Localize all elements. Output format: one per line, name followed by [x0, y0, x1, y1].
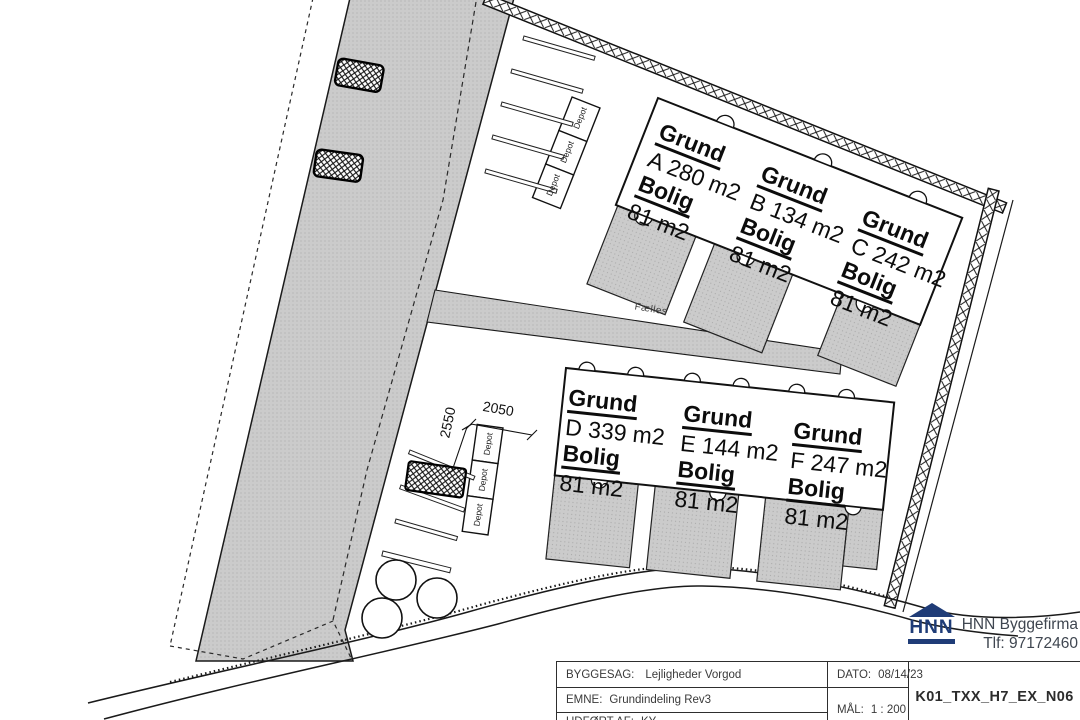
plot-e-bolig-label: Bolig — [676, 456, 737, 491]
emne-label: EMNE: — [566, 694, 602, 706]
vehicle-hatched-2 — [313, 149, 363, 182]
company-name: HNN Byggefirma — [952, 615, 1078, 634]
titleblock-emne-cell: EMNE: Grundindeling Rev3 — [557, 688, 828, 713]
company-phone: Tlf: 97172460 — [952, 634, 1078, 653]
maal-label: MÅL: — [837, 704, 864, 716]
hnn-logo-monogram: HNN — [908, 617, 955, 638]
plot-f-bolig-label: Bolig — [786, 473, 847, 508]
titleblock-byggesag-cell: BYGGESAG: Lejligheder Vorgod — [557, 662, 828, 688]
plot-label-f: Grund F 247 m2 Bolig 81 m2 — [783, 417, 891, 539]
plot-label-e: Grund E 144 m2 Bolig 81 m2 — [673, 400, 783, 522]
drawing-number: K01_TXX_H7_EX_N06 — [909, 662, 1080, 720]
dato-label: DATO: — [837, 669, 871, 681]
emne-value: Grundindeling Rev3 — [609, 694, 711, 706]
road-area — [196, 0, 514, 661]
hnn-logo-text: HNN Byggefirma Tlf: 97172460 — [952, 615, 1078, 653]
hnn-logo-roof-icon — [909, 603, 955, 617]
udfoert-label: UDFØRT AF: — [566, 716, 634, 720]
plot-d-bolig-label: Bolig — [561, 440, 622, 475]
titleblock-dato-cell: DATO: 08/14/23 — [828, 662, 909, 688]
hnn-logo: HNN — [908, 603, 955, 644]
plot-label-d: Grund D 339 m2 Bolig 81 m2 — [558, 384, 669, 506]
byggesag-label: BYGGESAG: — [566, 669, 634, 681]
title-block: BYGGESAG: Lejligheder Vorgod DATO: 08/14… — [556, 661, 1080, 720]
titleblock-maal-cell: MÅL: 1 : 200 — [828, 688, 909, 720]
titleblock-udfoert-cell: UDFØRT AF: KY — [557, 713, 828, 720]
maal-value: 1 : 200 — [871, 704, 906, 716]
site-plan-page: Grund A 280 m2 Bolig 81 m2 Grund B 134 m… — [0, 0, 1080, 720]
byggesag-value: Lejligheder Vorgod — [645, 669, 741, 681]
udfoert-value: KY — [641, 716, 656, 720]
hnn-logo-base-bar — [908, 639, 955, 644]
tree-circles — [362, 560, 457, 638]
